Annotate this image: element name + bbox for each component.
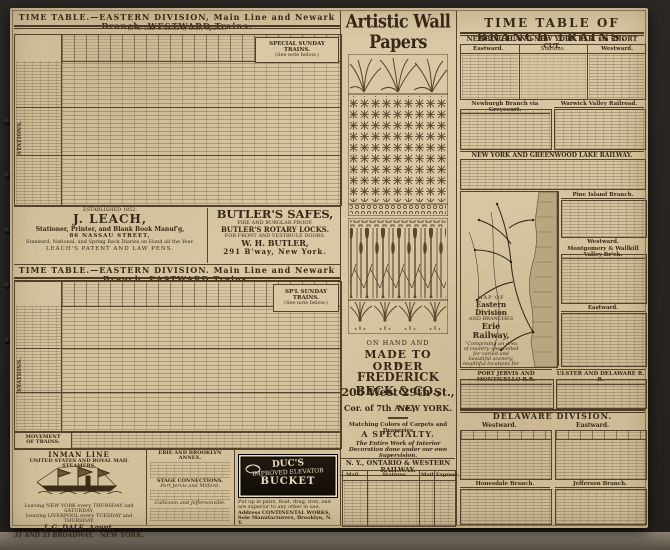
spl-sunday-box: SP'L SUNDAY TRAINS. (See note below.) [273, 284, 339, 312]
jefferson-title: Jefferson Branch. [555, 481, 645, 488]
station-names-grid [16, 61, 61, 204]
erie-railway-map: MAP OF Eastern Division AND BRANCHES Eri… [460, 191, 558, 368]
duc-note-2: Address CONTINENTAL WORKS, Sole Manufact… [238, 511, 338, 526]
butler-ad: BUTLER'S SAFES, FIRE AND BURGLAR PROOF. … [210, 208, 340, 263]
map-line-4: Erie Railway, [462, 322, 520, 340]
shortcut-westward-label: Westward. [601, 46, 633, 52]
station-names-grid [521, 54, 586, 98]
honesdale-grid [460, 489, 552, 525]
shortcut-eastward-label: Eastward. [473, 46, 503, 52]
delaware-east-table [555, 430, 647, 480]
station-names-grid [16, 306, 61, 430]
section-rule [16, 348, 340, 349]
honesdale-title: Honesdale Branch. [460, 481, 550, 488]
annex-fine-print [150, 507, 230, 521]
annex-title: ERIE AND BROOKLYN ANNEX. [148, 451, 232, 461]
westward-timetable: STATIONS. SPECIAL SUNDAY TRAINS. (See no… [14, 34, 342, 206]
timetable-grid [461, 439, 551, 479]
column-rule [234, 449, 235, 525]
column-rule [207, 208, 208, 263]
inman-city: NEW YORK. [100, 532, 144, 539]
leach-line3: Standard, National, and Spring Back Diar… [14, 239, 206, 245]
leach-line4: LEACH'S PATENT AND LAW PENS. [14, 246, 206, 252]
wallpaper-headline: Artistic Wall Papers [341, 11, 455, 52]
westward-table-note: (P. M. Time is shown by heavy figures.) [14, 27, 340, 32]
delaware-west-table [460, 430, 552, 480]
column-rule [558, 191, 559, 366]
pine-island-grid [561, 200, 647, 238]
timetable-grid [62, 306, 340, 430]
stage-route-2: Callicoon and Jeffersonville. [148, 501, 232, 506]
pine-island-title: Pine Island Branch. [561, 192, 645, 199]
newburgh-shortcut-table: Eastward. Stations. Westward. [460, 44, 646, 100]
spl-sunday-note: (See note below.) [274, 301, 338, 306]
eastward-2-label: Eastward. [561, 305, 645, 312]
ontario-col-stations: Stations. [373, 473, 417, 478]
leach-line1: Stationer, Printer, and Blank Book Manuf… [14, 226, 206, 233]
timetable-grid [462, 54, 518, 98]
delaware-division-title: DELAWARE DIVISION. [460, 412, 645, 421]
eastward-timetable: STATIONS. SP'L SUNDAY TRAINS. (See note … [14, 281, 342, 432]
divider-rule [388, 417, 408, 419]
beck-specialty: A SPECIALTY. [341, 430, 455, 439]
section-rule [16, 107, 340, 108]
column-rule [146, 449, 147, 525]
annex-fine-print [150, 490, 230, 500]
inman-address: 31 AND 33 BROADWAY, [14, 532, 94, 539]
ontario-col-mail: Mail. [346, 473, 360, 478]
ontario-col-express: Express. [436, 473, 459, 478]
warwick-title: Warwick Valley Railroad. [554, 101, 644, 108]
butler-address: 291 B'way, New York. [210, 248, 340, 256]
eastward-2-grid [561, 313, 647, 367]
beck-address-2-row: Cor. of 7th Ave., NEW YORK. [344, 404, 452, 414]
shortcut-stations-label: Stations. [523, 46, 583, 52]
steamship-icon [36, 464, 122, 494]
duc-ad-box: DUC'S IMPROVED ELEVATOR BUCKET [238, 454, 338, 498]
brooklyn-annex-ad: ERIE AND BROOKLYN ANNEX. STAGE CONNECTIO… [148, 451, 232, 525]
column-rule [456, 11, 457, 525]
duc-bucket-ad: DUC'S IMPROVED ELEVATOR BUCKET Put up in… [236, 451, 340, 525]
timetable-grid [589, 54, 644, 98]
beck-city: NEW YORK. [398, 404, 452, 413]
timetable-sheet: TIME TABLE.—EASTERN DIVISION, Main Line … [10, 8, 648, 528]
beck-decoration-note: The Entire Work of Interior Decoration d… [344, 441, 452, 459]
timetable-grid [344, 481, 454, 525]
stage-route-1: Port Jervis and Milford. [148, 484, 232, 489]
special-sunday-note: (See note below.) [256, 53, 338, 58]
wallpaper-pattern-reeds [348, 218, 448, 334]
duc-note-1: Put up in pairs, float, drag, iron, and … [238, 500, 338, 510]
column-rule [587, 45, 588, 99]
column-rule [340, 11, 341, 525]
greenwood-lake-grid [460, 159, 646, 190]
montgomery-direction: Westward. [561, 239, 645, 245]
ontario-western-table: Mail. Stations. Mail. Express. [342, 470, 456, 527]
wallpaper-pattern-palms [348, 54, 448, 216]
map-title-block: MAP OF Eastern Division AND BRANCHES Eri… [462, 296, 520, 368]
section-rule [16, 155, 340, 156]
footnotes-fine-print [71, 432, 342, 449]
photo-background: TIME TABLE.—EASTERN DIVISION, Main Line … [0, 0, 670, 550]
movement-of-trains-box: MOVEMENT OF TRAINS. [14, 432, 72, 449]
timetable-grid [62, 61, 340, 204]
warwick-grid [554, 109, 646, 150]
section-rule [16, 392, 340, 393]
port-jervis-grid [460, 379, 554, 409]
montgomery-grid [561, 254, 647, 304]
column-rule [519, 45, 520, 99]
inman-line-ad: INMAN LINE UNITED STATES AND ROYAL MAIL … [14, 451, 144, 525]
leach-ad: ESTABLISHED 1852. J. LEACH, Stationer, P… [14, 208, 206, 263]
movement-label-2: OF TRAINS. [15, 440, 71, 445]
beck-onhand: ON HAND AND [341, 340, 455, 347]
jefferson-grid [555, 489, 647, 525]
greycourt-grid [460, 109, 552, 150]
timetable-grid [556, 439, 646, 479]
map-caption: “Comprising an area of country unexcelle… [462, 342, 520, 368]
ulster-delaware-grid [556, 379, 647, 409]
delaware-eastward-label: Eastward. [576, 422, 609, 429]
delaware-westward-label: Westward. [482, 422, 517, 429]
leach-name: J. LEACH, [14, 213, 206, 226]
special-sunday-box: SPECIAL SUNDAY TRAINS. (See note below.) [255, 37, 339, 63]
beck-address-1: 206 West 29th St., [341, 387, 455, 399]
annex-fine-print [150, 462, 230, 478]
map-line-2: Eastern Division [462, 301, 520, 317]
